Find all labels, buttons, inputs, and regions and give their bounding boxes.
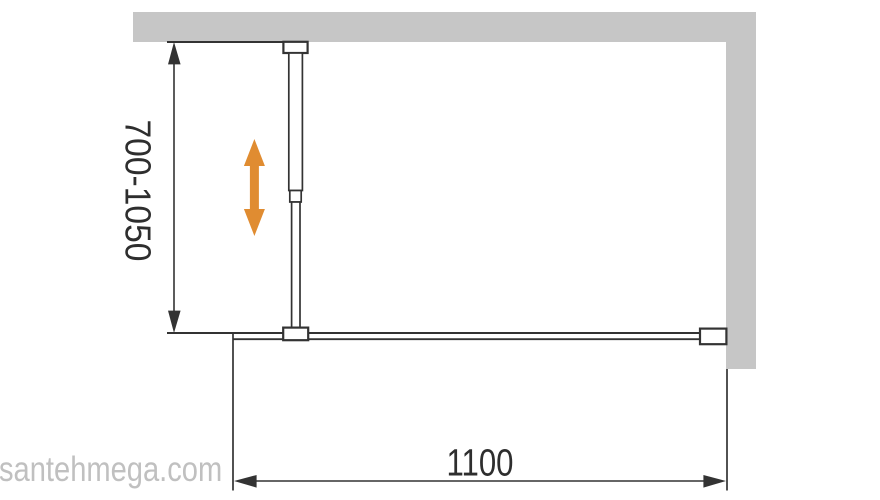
svg-text:700-1050: 700-1050 (118, 120, 159, 262)
svg-text:santehmega.com: santehmega.com (0, 449, 222, 488)
svg-text:1100: 1100 (447, 443, 514, 485)
